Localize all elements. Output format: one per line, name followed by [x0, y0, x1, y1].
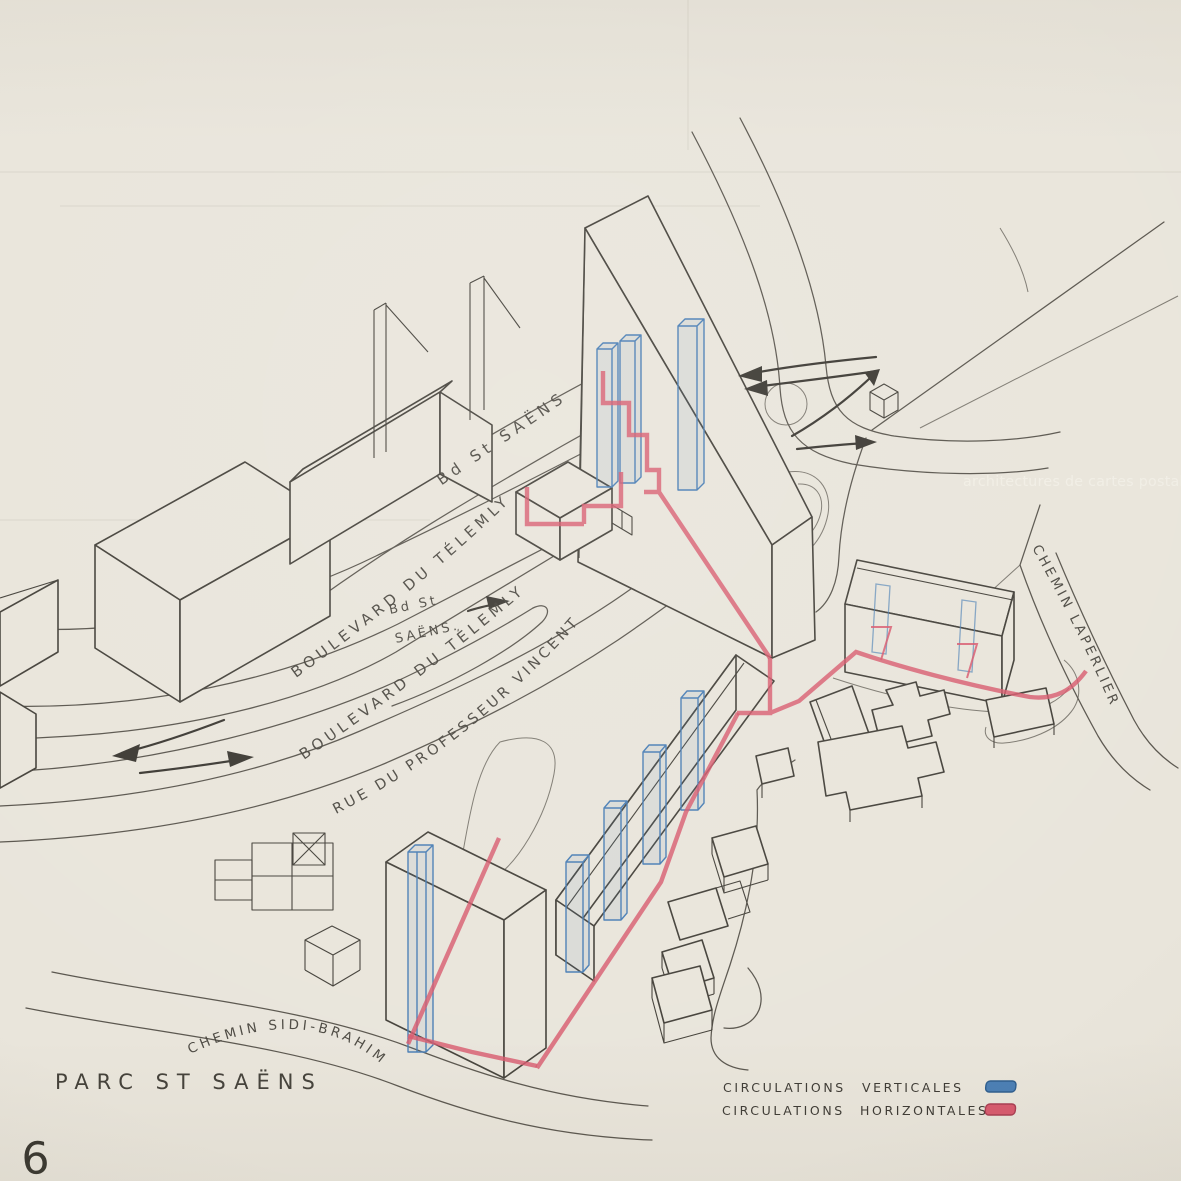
legend: CIRCULATIONS VERTICALES CIRCULATIONS HOR…: [722, 1080, 1016, 1118]
arrow-right-icon: [140, 759, 244, 773]
building-kiosk: [870, 384, 898, 418]
legend-swatch-verticales: [985, 1081, 1016, 1092]
building-left-cluster: [0, 276, 520, 788]
legend-swatch-horizontales: [985, 1104, 1016, 1115]
arrow-topright-up-icon: [792, 378, 870, 436]
label-chemin-sidi-brahim: CHEMIN SIDI-BRAHIM: [185, 1017, 390, 1068]
arrow-topright-left1-icon: [748, 357, 876, 374]
building-right: [845, 560, 1014, 704]
legend-row2-left: CIRCULATIONS: [722, 1103, 845, 1118]
x-marked-square: [293, 833, 325, 865]
legend-row2-right: HORIZONTALES: [860, 1103, 989, 1118]
arrow-topright-left2-icon: [754, 371, 878, 387]
watermark-text: architectures de cartes postales: [963, 474, 1181, 490]
building-cluster-mid-right: [756, 682, 1054, 822]
site-plan-drawing: Bd St SAËNS BOULEVARD DU TÉLEMLY Bd St S…: [0, 0, 1181, 1181]
label-parc-st-saens: PARC ST SAËNS: [55, 1069, 323, 1094]
legend-row1-right: VERTICALES: [862, 1080, 964, 1095]
building-courtyard: [215, 833, 360, 986]
buildings: [0, 196, 1054, 1078]
page-number: 6: [21, 1133, 51, 1181]
legend-row1-left: CIRCULATIONS: [723, 1080, 846, 1095]
axonometric-site-plan: Bd St SAËNS BOULEVARD DU TÉLEMLY Bd St S…: [0, 0, 1181, 1181]
